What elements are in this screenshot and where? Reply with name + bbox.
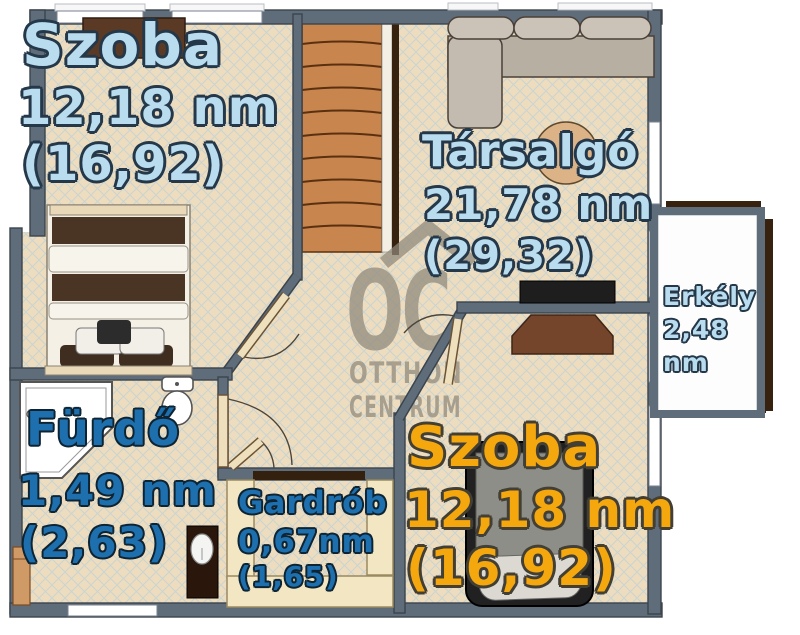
window-bathroom [68, 605, 157, 616]
room-name: Erkély [663, 284, 756, 309]
room-name: Társalgó [422, 130, 638, 174]
wall-lounge-bedroom2 [457, 302, 661, 313]
wardrobe-rod [253, 471, 365, 480]
tv-sideboard [520, 281, 615, 303]
room-area: 2,48 [663, 317, 729, 342]
room-area: 12,18 nm [18, 84, 279, 132]
room-area: 12,18 nm [404, 485, 675, 535]
room-gross: (29,32) [424, 236, 594, 276]
wall-bedroom1-right [293, 14, 302, 280]
room-name: Szoba [407, 420, 601, 476]
room-area: 0,67nm [238, 527, 375, 558]
vanity-sink [187, 526, 218, 598]
room-area: 1,49 nm [18, 470, 217, 512]
room-unit: nm [663, 350, 709, 375]
desk [512, 315, 613, 354]
room-name: Gardrób [238, 488, 388, 519]
balcony-floor [658, 215, 757, 411]
stair-railing [392, 21, 399, 255]
staircase [302, 21, 399, 255]
room-gross: (16,92) [406, 543, 617, 593]
room-gross: (2,63) [20, 522, 168, 564]
room-gross: (16,92) [22, 140, 225, 188]
floorplan: OC OTTHON CENTRUM [0, 0, 800, 635]
room-gross: (1,65) [238, 563, 339, 591]
room-area: 21,78 nm [424, 184, 653, 226]
bed-top-left [45, 205, 192, 375]
room-name: Szoba [22, 16, 223, 74]
stair-stringer [382, 21, 392, 252]
room-name: Fürdő [26, 406, 180, 452]
